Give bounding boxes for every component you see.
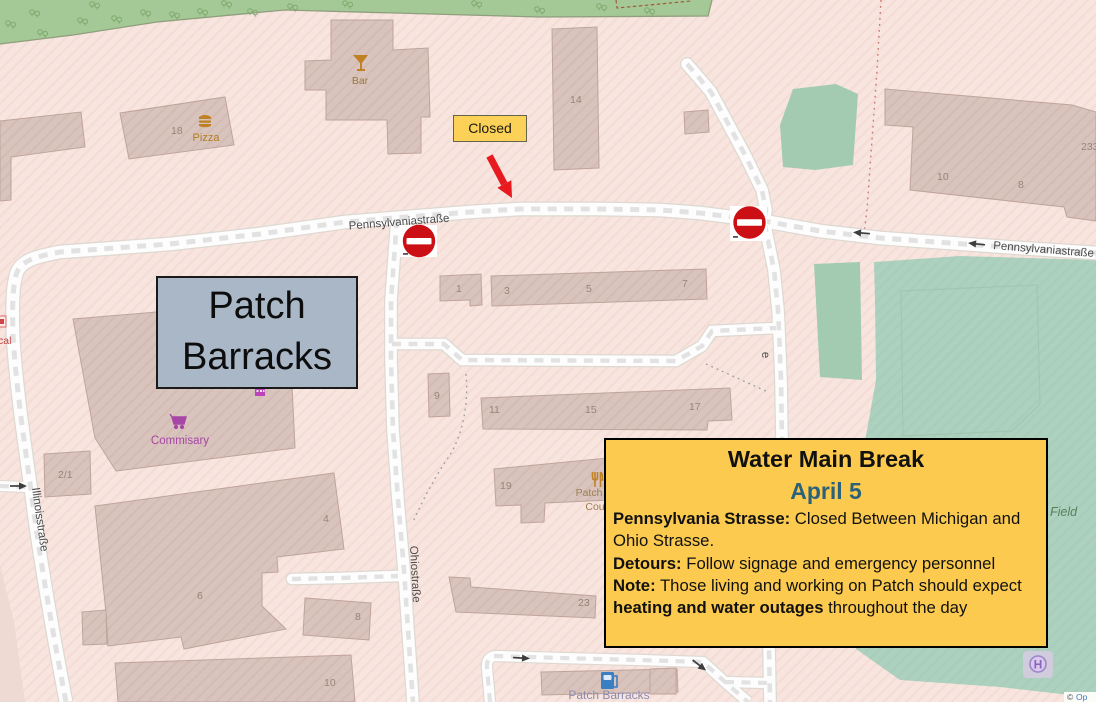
svg-text:©: © xyxy=(1067,692,1074,702)
svg-text:1: 1 xyxy=(456,283,462,295)
svg-text:4: 4 xyxy=(323,513,329,525)
svg-text:5: 5 xyxy=(586,283,592,295)
svg-text:9: 9 xyxy=(434,390,440,402)
svg-text:18: 18 xyxy=(171,125,183,137)
svg-text:e: e xyxy=(759,352,771,359)
svg-text:Op: Op xyxy=(1076,692,1088,702)
svg-text:15: 15 xyxy=(585,404,597,416)
svg-text:H: H xyxy=(1034,658,1043,672)
svg-text:8: 8 xyxy=(1018,179,1024,191)
svg-text:10: 10 xyxy=(937,171,949,183)
svg-text:10: 10 xyxy=(324,677,336,689)
svg-text:7: 7 xyxy=(682,278,688,290)
svg-text:3: 3 xyxy=(504,285,510,297)
svg-text:Bar: Bar xyxy=(352,75,369,87)
svg-text:19: 19 xyxy=(500,480,512,492)
svg-text:cal: cal xyxy=(0,335,11,347)
svg-text:8: 8 xyxy=(355,611,361,623)
svg-text:6: 6 xyxy=(197,590,203,602)
svg-text:11: 11 xyxy=(489,404,500,416)
svg-text:2/1: 2/1 xyxy=(58,469,73,481)
svg-text:Cou: Cou xyxy=(585,501,604,513)
svg-text:233: 233 xyxy=(1081,141,1096,153)
svg-text:Field: Field xyxy=(1050,505,1078,519)
svg-text:14: 14 xyxy=(570,94,582,106)
svg-text:17: 17 xyxy=(689,401,701,413)
svg-text:Patch: Patch xyxy=(576,487,603,499)
svg-text:Pizza: Pizza xyxy=(193,132,221,144)
svg-text:23: 23 xyxy=(578,597,590,609)
svg-text:Commisary: Commisary xyxy=(151,435,209,447)
svg-text:Patch Barracks: Patch Barracks xyxy=(568,688,649,702)
